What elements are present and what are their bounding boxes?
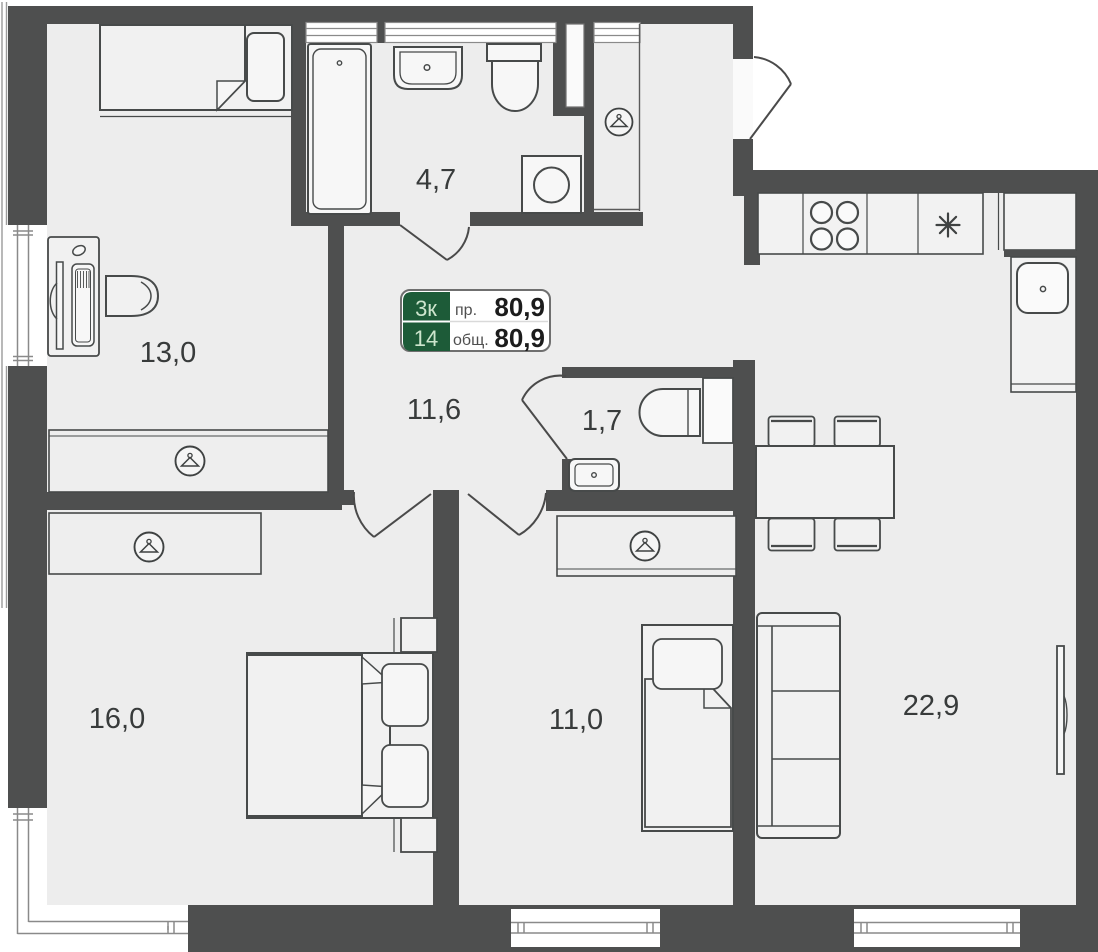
svg-text:22,9: 22,9 [903, 690, 959, 722]
svg-text:общ.: общ. [453, 332, 489, 349]
svg-text:80,9: 80,9 [494, 292, 545, 322]
svg-text:3к: 3к [415, 296, 437, 321]
svg-text:11,0: 11,0 [549, 704, 603, 736]
svg-text:13,0: 13,0 [140, 337, 196, 369]
svg-text:пр.: пр. [455, 302, 477, 319]
svg-text:11,6: 11,6 [407, 394, 461, 426]
svg-text:80,9: 80,9 [494, 323, 545, 353]
svg-text:14: 14 [414, 326, 438, 351]
svg-text:1,7: 1,7 [582, 405, 622, 437]
svg-text:16,0: 16,0 [89, 703, 145, 735]
svg-text:4,7: 4,7 [416, 164, 456, 196]
